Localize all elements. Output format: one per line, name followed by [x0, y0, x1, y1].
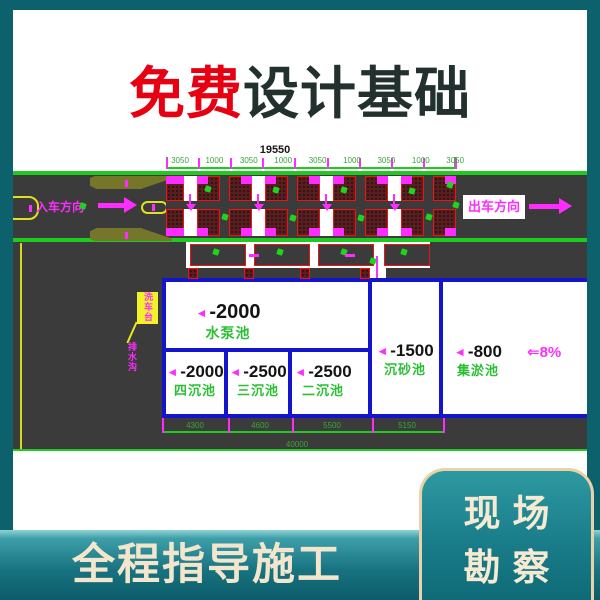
dimension-line [166, 167, 456, 169]
lane-arrow-head-icon [390, 204, 400, 211]
corner-card-line2: 勘察 [422, 537, 591, 591]
equipment-pad [265, 176, 276, 184]
pool-sludge-elevation: -800 [468, 342, 502, 361]
equipment-pad [241, 176, 252, 184]
pool-pump-name: 水泵池 [158, 324, 298, 342]
equipment-pad [265, 228, 276, 236]
pool-pump-label: ◄-2000 水泵池 [158, 301, 298, 342]
page-title: 免费设计基础 [13, 58, 587, 130]
pool-fourth-name: 四沉池 [163, 382, 227, 400]
equipment-pad [166, 176, 184, 184]
overall-width-dimension: 19550 [230, 144, 320, 156]
dimension-segment-label: 1000 [408, 156, 434, 165]
exit-arrow [529, 204, 559, 209]
equipment-pad [401, 228, 412, 236]
drive-lane [166, 201, 456, 209]
exit-arrow-head-icon [559, 198, 572, 214]
pool-sludge-name: 集淤池 [446, 362, 510, 380]
elevation-triangle-icon: ◄ [376, 344, 388, 358]
pool-grit-elevation: -1500 [390, 341, 433, 360]
callout-box: 洗车台 [137, 292, 158, 324]
dimension-line [162, 431, 445, 433]
equipment-pad [445, 228, 456, 236]
lane-arrow-head-icon [322, 204, 332, 211]
overall-length-dimension: 40000 [277, 440, 317, 449]
drain-label-text: 排水沟 [126, 342, 139, 372]
dimension-tick [443, 418, 445, 433]
slope-label: ⇐8% [527, 343, 561, 361]
walkway-arrow [249, 254, 259, 257]
pool-sludge-label: ◄-800 集淤池 [446, 342, 510, 380]
overall-dimension-line [13, 449, 587, 451]
site-boundary-line [20, 243, 22, 450]
elevation-triangle-icon: ◄ [454, 345, 466, 359]
equipment-pad [241, 228, 252, 236]
equipment-pad [166, 228, 184, 236]
dimension-segment-label: 3050 [305, 156, 331, 165]
equipment-pad [197, 228, 208, 236]
hatched-column [300, 268, 310, 279]
bottom-banner-text: 全程指导施工 [25, 541, 389, 589]
lane-arrow [257, 194, 259, 204]
equipment-pad [377, 176, 388, 184]
pool-pump-elevation: -2000 [209, 301, 260, 323]
entry-arrow-head-icon [124, 197, 137, 213]
pool-second-name: 二沉池 [291, 382, 355, 400]
lane-arrow [189, 194, 191, 204]
dimension-segment-label: 1000 [201, 156, 227, 165]
dimension-tick [228, 418, 230, 433]
hatched-column [188, 268, 198, 279]
entry-arrow [98, 203, 124, 208]
hatched-column [360, 268, 370, 279]
dimension-segment-label: 4300 [182, 421, 208, 430]
elevation-triangle-icon: ◄ [195, 306, 207, 320]
promo-image: 免费设计基础 19550 入车方向 出车方向 [0, 0, 600, 600]
dimension-segment-label: 3050 [373, 156, 399, 165]
pool-third-elevation: -2500 [243, 362, 286, 381]
magenta-tick [152, 204, 155, 211]
dimension-segment-label: 3050 [236, 156, 262, 165]
pool-third-label: ◄-2500 三沉池 [226, 362, 290, 400]
page-border-top [0, 0, 600, 10]
dimension-tick [292, 418, 294, 433]
pool-grit-label: ◄-1500 沉砂池 [373, 341, 437, 379]
exit-direction-label: 出车方向 [463, 195, 525, 219]
lane-arrow [393, 194, 395, 204]
dimension-segment-label: 3050 [167, 156, 193, 165]
equipment-pad [333, 228, 344, 236]
title-rest: 设计基础 [243, 62, 471, 125]
title-highlight: 免费 [129, 62, 243, 125]
magenta-tick [125, 180, 128, 187]
slope-arrow-icon: ⇐ [527, 344, 540, 361]
equipment-pad [309, 228, 320, 236]
page-border-left [0, 0, 13, 600]
drain-label: 排水沟 [126, 342, 138, 388]
corner-card-line1: 现场 [422, 483, 591, 537]
entry-direction-label: 入车方向 [36, 198, 84, 215]
dimension-tick [198, 158, 200, 169]
site-plan-drawing: 19550 入车方向 出车方向 ◄-2000 水泵 [13, 144, 587, 452]
pool-second-elevation: -2500 [308, 362, 351, 381]
pool-fourth-elevation: -2000 [180, 362, 223, 381]
dimension-tick [162, 418, 164, 433]
slope-value: 8% [540, 344, 562, 361]
elevation-triangle-icon: ◄ [294, 365, 306, 379]
elevation-triangle-icon: ◄ [166, 365, 178, 379]
equipment-pad [309, 176, 320, 184]
magenta-tick [29, 205, 32, 212]
pool-fourth-label: ◄-2000 四沉池 [163, 362, 227, 400]
walkway-arrow [345, 254, 355, 257]
walkway-bay-box [384, 244, 430, 266]
hatched-column [244, 268, 254, 279]
pool-grit-name: 沉砂池 [373, 361, 437, 379]
lane-arrow-head-icon [186, 204, 196, 211]
road-edge-line-top [13, 171, 587, 175]
dimension-tick [262, 158, 264, 169]
corner-card: 现场 勘察 [419, 468, 594, 600]
pool-second-label: ◄-2500 二沉池 [291, 362, 355, 400]
callout-label: 洗车台 [137, 292, 158, 322]
magenta-tick [125, 232, 128, 239]
dimension-segment-label: 3050 [442, 156, 468, 165]
dimension-segment-label: 1000 [339, 156, 365, 165]
dimension-segment-label: 1000 [270, 156, 296, 165]
dimension-segment-label: 5150 [394, 421, 420, 430]
dimension-segment-label: 4600 [247, 421, 273, 430]
equipment-pad [377, 228, 388, 236]
pool-third-name: 三沉池 [226, 382, 290, 400]
equipment-pad [401, 176, 412, 184]
equipment-pad [197, 176, 208, 184]
dimension-segment-label: 5500 [319, 421, 345, 430]
lane-arrow [325, 194, 327, 204]
elevation-triangle-icon: ◄ [229, 365, 241, 379]
equipment-pad [333, 176, 344, 184]
dimension-tick [230, 158, 232, 169]
dimension-tick [372, 418, 374, 433]
lane-arrow-head-icon [254, 204, 264, 211]
